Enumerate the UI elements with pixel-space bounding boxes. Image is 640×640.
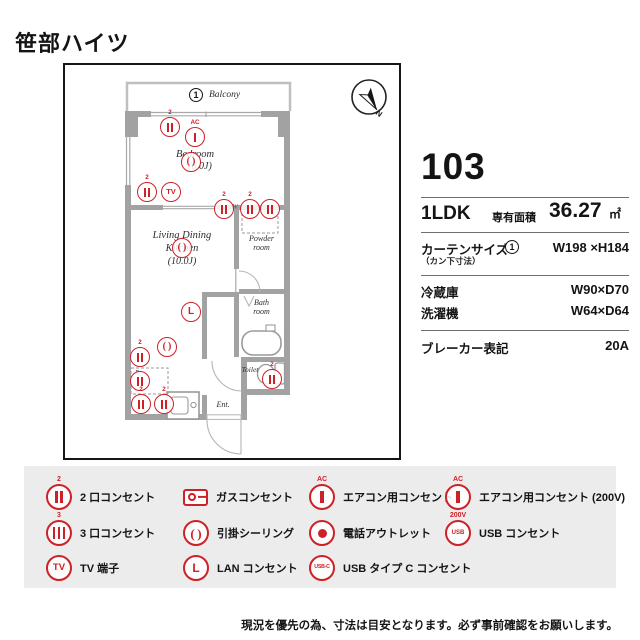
usb-outlet-icon: USB: [445, 520, 471, 546]
area-unit: ㎡: [609, 205, 621, 222]
washer-label: 洗濯機: [421, 303, 459, 322]
outlet3-icon: 3: [46, 520, 72, 546]
outlet2-icon: 2: [130, 347, 150, 367]
plan-symbols-layer: 2AC()2TV22()L()2222: [65, 65, 399, 458]
unit-info-panel: 103 1LDK 専有面積 36.27 ㎡ カーテンサイズ （カン下寸法） 1 …: [420, 152, 630, 367]
ac-outlet-icon: AC: [185, 127, 205, 147]
outlet2-icon: 2: [137, 182, 157, 202]
legend-label: TV 端子: [80, 560, 119, 576]
legend-item: ガスコンセント: [183, 484, 293, 510]
legend-label: 2 口コンセント: [80, 489, 155, 505]
washer-size: W64×D64: [571, 303, 629, 318]
ceiling-light-icon: (): [157, 337, 177, 357]
fridge-label: 冷蔵庫: [421, 282, 459, 301]
usbc-outlet-icon: USB-C: [309, 555, 335, 581]
divider: [421, 197, 629, 198]
legend-label: USB コンセント: [479, 525, 560, 541]
disclaimer-text: 現況を優先の為、寸法は目安となります。必ず事前確認をお願いします。: [241, 617, 618, 633]
outlet2-icon: 2: [46, 484, 72, 510]
legend-label: ガスコンセント: [216, 489, 293, 505]
legend-label: USB タイプ C コンセント: [343, 560, 471, 576]
breaker-value: 20A: [605, 338, 629, 353]
divider: [421, 275, 629, 276]
legend-item: TVTV 端子: [46, 555, 119, 581]
tv-terminal-icon: TV: [161, 182, 181, 202]
legend-label: LAN コンセント: [217, 560, 298, 576]
curtain-size-value: W198 ×H184: [553, 240, 629, 255]
ac-outlet-icon: AC: [309, 484, 335, 510]
legend-label: エアコン用コンセント (200V): [479, 489, 625, 505]
legend-panel: 22 口コンセント33 口コンセントTVTV 端子ガスコンセント()引掛シーリン…: [24, 466, 616, 588]
legend-item: ()引掛シーリング: [183, 520, 294, 546]
legend-label: 引掛シーリング: [217, 525, 294, 541]
ac200-outlet-icon: AC200V: [445, 484, 471, 510]
fridge-size: W90×D70: [571, 282, 629, 297]
ceiling-light-icon: (): [172, 238, 192, 258]
tv-terminal-icon: TV: [46, 555, 72, 581]
legend-item: 22 口コンセント: [46, 484, 155, 510]
ceiling-light-icon: (): [183, 520, 209, 546]
room-number: 103: [421, 146, 486, 188]
curtain-size-note: （カン下寸法）: [421, 255, 481, 267]
ceiling-light-icon: (): [181, 152, 201, 172]
phone-outlet-icon: [309, 520, 335, 546]
outlet2-icon: [260, 199, 280, 219]
outlet2-icon: 2: [214, 199, 234, 219]
outlet2-icon: 2: [131, 394, 151, 414]
legend-label: エアコン用コンセント: [343, 489, 453, 505]
gas-outlet-icon: [183, 489, 208, 506]
outlet2-icon: 2: [240, 199, 260, 219]
legend-item: AC200Vエアコン用コンセント (200V): [445, 484, 625, 510]
page-title: 笹部ハイツ: [15, 26, 130, 58]
legend-label: 3 口コンセント: [80, 525, 155, 541]
layout-type: 1LDK: [421, 203, 471, 225]
breaker-label: ブレーカー表記: [421, 338, 509, 357]
curtain-number: 1: [505, 240, 519, 254]
legend-item: LLAN コンセント: [183, 555, 298, 581]
outlet2-icon: 2: [160, 117, 180, 137]
legend-item: USBUSB コンセント: [445, 520, 560, 546]
area-value: 36.27: [549, 199, 602, 223]
area-label: 専有面積: [492, 209, 536, 225]
lan-outlet-icon: L: [183, 555, 209, 581]
legend-label: 電話アウトレット: [343, 525, 431, 541]
divider: [421, 232, 629, 233]
outlet2-icon: 2: [262, 369, 282, 389]
legend-item: ACエアコン用コンセント: [309, 484, 453, 510]
outlet2-icon: 2: [154, 394, 174, 414]
legend-item: 電話アウトレット: [309, 520, 431, 546]
divider: [421, 330, 629, 331]
legend-item: USB-CUSB タイプ C コンセント: [309, 555, 471, 581]
legend-item: 33 口コンセント: [46, 520, 155, 546]
lan-outlet-icon: L: [181, 302, 201, 322]
floorplan-box: 1 Balcony Bedroom (6.0J) Living Dining K…: [63, 63, 401, 460]
